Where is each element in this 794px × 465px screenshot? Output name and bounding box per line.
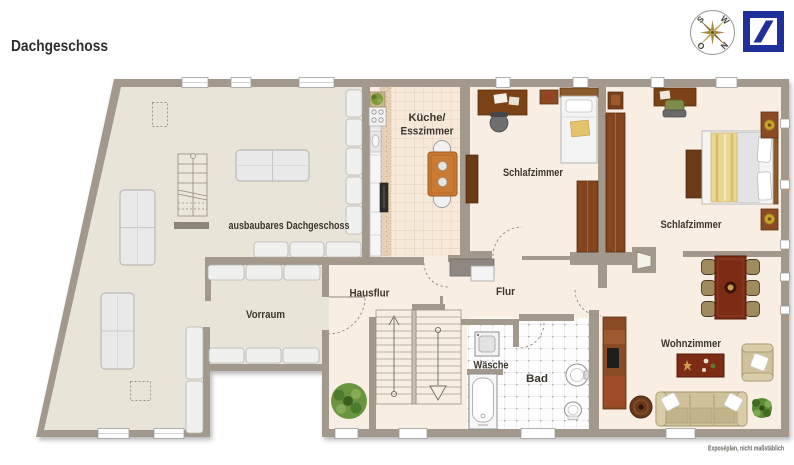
svg-text:Bad: Bad <box>526 373 548 385</box>
svg-text:Küche/: Küche/ <box>409 112 446 124</box>
svg-text:Wäsche: Wäsche <box>474 360 509 372</box>
svg-text:Schlafzimmer: Schlafzimmer <box>503 167 564 179</box>
svg-text:Vorraum: Vorraum <box>246 309 285 321</box>
svg-text:Wohnzimmer: Wohnzimmer <box>661 338 722 350</box>
svg-text:ausbaubares Dachgeschoss: ausbaubares Dachgeschoss <box>229 220 350 232</box>
svg-text:Schlafzimmer: Schlafzimmer <box>661 219 723 231</box>
svg-text:Flur: Flur <box>496 286 516 298</box>
svg-text:Exposéplan, nicht maßstäblich: Exposéplan, nicht maßstäblich <box>708 446 784 453</box>
svg-text:Esszimmer: Esszimmer <box>401 126 455 138</box>
svg-text:Hausflur: Hausflur <box>350 288 391 300</box>
svg-text:Dachgeschoss: Dachgeschoss <box>11 38 108 55</box>
